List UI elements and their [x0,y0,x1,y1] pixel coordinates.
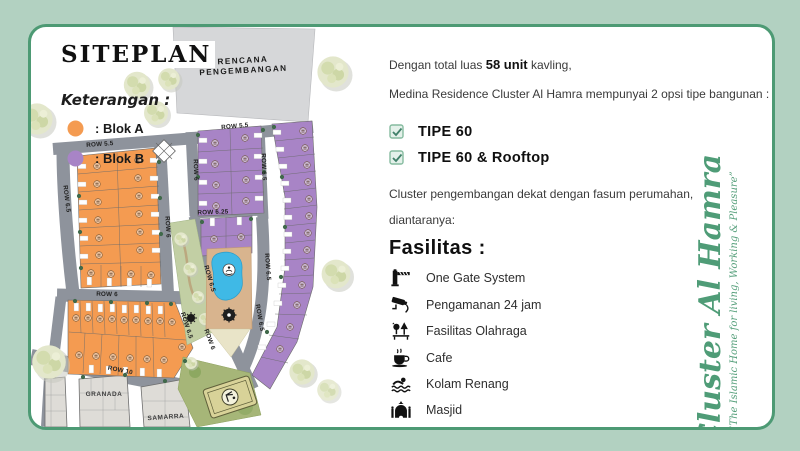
cluster-name: Cluster Al Hamra [696,155,726,430]
blok-a-swatch [67,120,84,137]
siteplan-map: RENCANA PENGEMBANGAN GRANADA SAMARRA [31,27,401,427]
blok-b-cluster1 [198,126,264,216]
facility-pool: Kolam Renang [389,372,509,395]
intro-line-1: Dengan total luas 58 unit kavling, [389,57,572,72]
row-label: ROW 6 [96,291,118,298]
legend-item-blok-b: : Blok B [67,150,144,167]
facility-label: One Gate System [426,271,525,285]
facility-label: Fasilitas Olahraga [426,324,527,338]
neighbor-blocks: GRANADA SAMARRA [45,375,190,427]
pool-icon [223,264,235,276]
cafe-icon [389,346,412,369]
facility-security: Pengamanan 24 jam [389,293,541,316]
swim-icon [389,372,412,395]
flyer-card: RENCANA PENGEMBANGAN GRANADA SAMARRA [28,24,775,430]
fasum-line-1: Cluster pengembangan dekat dengan fasum … [389,187,693,201]
legend-item-blok-a: : Blok A [67,120,144,137]
type-option-label: TIPE 60 [418,124,473,140]
swimming-pool-shape [212,252,243,300]
fountain-icon [222,308,237,323]
cctv-icon [389,293,412,316]
checkbox-icon [389,124,405,140]
type-option-label: TIPE 60 & Rooftop [418,150,550,166]
row-label: ROW 6 [163,216,171,238]
facility-one-gate: One Gate System [389,266,525,289]
facility-label: Masjid [426,403,462,417]
brand-vertical: Cluster Al Hamra “The Islamic Home for l… [696,155,762,430]
page-title: SITEPLAN [61,41,215,68]
row-label: ROW 6.25 [197,208,229,216]
blok-b-swatch [67,150,84,167]
neighbor-label-granada: GRANADA [86,391,123,398]
type-option-1: TIPE 60 [389,124,473,140]
checkbox-icon [389,150,405,166]
facility-label: Pengamanan 24 jam [426,298,541,312]
cluster-tagline: “The Islamic Home for living, Working & … [729,155,740,430]
legend-heading: Keterangan : [61,91,170,109]
row-label: ROW 6.5 [260,153,268,181]
intro-line-2: Medina Residence Cluster Al Hamra mempun… [389,87,769,101]
facility-cafe: Cafe [389,346,452,369]
legend-label: : Blok B [95,151,144,166]
type-option-2: TIPE 60 & Rooftop [389,150,550,166]
gate-icon [389,266,412,289]
compass-icon [153,140,176,163]
legend-label: : Blok A [95,121,144,136]
facility-label: Kolam Renang [426,377,509,391]
blok-a-lower [68,300,193,378]
mosque-icon [389,398,412,421]
facility-label: Cafe [426,351,452,365]
row-label: ROW 6 [192,159,200,181]
fasum-line-2: diantaranya: [389,213,455,227]
blok-a-upper [77,148,161,288]
unit-count: 58 unit [486,57,528,72]
sport-icon [389,319,412,342]
facility-mosque: Masjid [389,398,462,421]
facilities-heading: Fasilitas : [389,237,486,260]
facility-sport: Fasilitas Olahraga [389,319,527,342]
